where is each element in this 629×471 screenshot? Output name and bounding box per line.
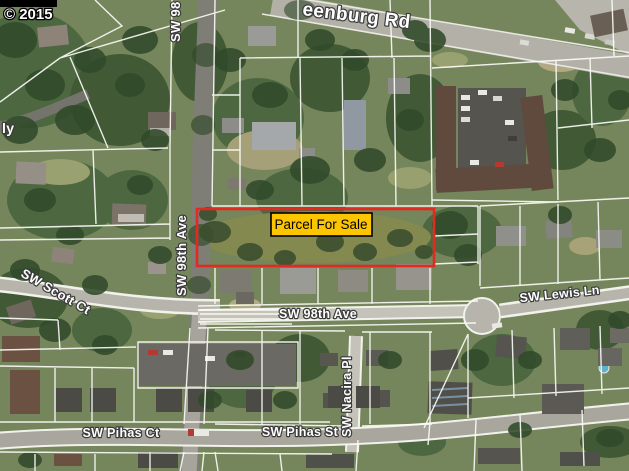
attribution: © 2015 <box>0 0 57 23</box>
street-label-sw98th-ave-vertical: SW 98th Ave <box>174 215 189 296</box>
street-label-sw98th-top-partial: SW 98 <box>168 1 183 42</box>
street-label-sw-pihas-st: SW Pihas St <box>262 425 339 439</box>
street-label-sw-pihas-ct: SW Pihas Ct <box>83 426 160 440</box>
street-label-sw-nacira-pl: SW Nacira Pl <box>340 356 354 437</box>
copyright-text: © 2015 <box>4 6 53 23</box>
aerial-parcel-map: eenburg Rd SW 98 SW 98th Ave SW Scott Ct… <box>0 0 629 471</box>
parcel-label-text: Parcel For Sale <box>274 217 367 232</box>
street-label-sw98th-ave-horizontal: SW 98th Ave <box>279 307 357 321</box>
map-canvas: eenburg Rd SW 98 SW 98th Ave SW Scott Ct… <box>0 0 629 471</box>
street-label-left-partial: ly <box>2 120 14 136</box>
parcel-for-sale-label: Parcel For Sale <box>271 213 372 236</box>
